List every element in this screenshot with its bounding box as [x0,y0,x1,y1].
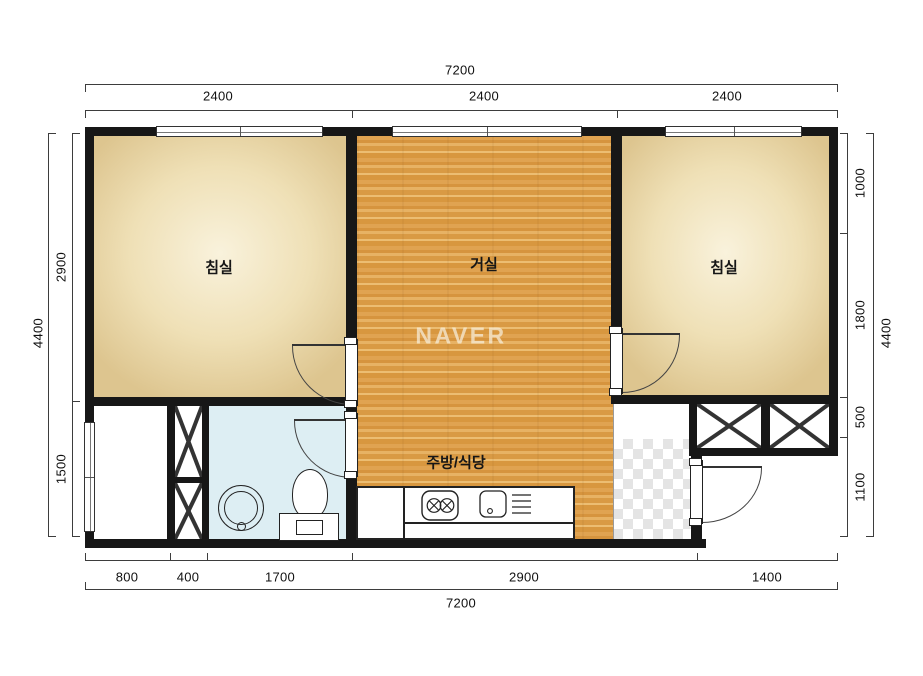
wall-below-bedroom-left [85,397,357,406]
dim-top-total: 7200 [445,63,475,78]
dim-line [48,133,49,537]
dim-tick [837,582,838,590]
door-leaf [702,466,762,468]
dim-tick [837,553,838,561]
window-icon [156,126,323,137]
dim-tick [72,401,80,402]
dim-tick [85,553,86,561]
closet-x-icon [697,404,761,448]
dim-tick [840,437,848,438]
dim-tick [207,553,208,561]
bedroom-right-door [610,328,623,394]
naver-watermark: NAVER [415,323,506,350]
stove-icon [421,490,459,521]
entry-boundary-line [613,404,614,539]
front-door [690,460,703,524]
room-label-bedroom-left: 침실 [205,257,233,278]
window-icon [665,126,802,137]
window-icon [84,422,95,532]
dim-tick [352,553,353,561]
dim-tick [837,84,838,92]
washbasin-inner-ring [224,491,258,525]
dim-top-seg: 2400 [469,89,499,104]
dim-right-seg: 500 [853,406,868,429]
dim-tick [85,582,86,590]
dim-left-seg: 2900 [54,252,69,282]
dim-tick [840,536,848,537]
door-leaf [292,344,352,346]
bathroom-door [345,413,358,477]
dim-tick [352,110,353,118]
dim-right-total: 4400 [879,318,894,348]
door-leaf [294,419,352,421]
dim-line [85,110,838,111]
bedroom-left-door [345,339,358,406]
closet-left-lower [175,483,202,539]
washbasin-drain [237,522,246,531]
closet-x-icon [770,404,829,448]
dim-tick [617,110,618,118]
dim-left-total: 4400 [31,318,46,348]
dim-bottom-seg: 800 [116,570,139,585]
dim-line [85,84,838,85]
room-label-kitchen: 주방/식당 [426,452,485,473]
door-leaf [622,333,680,335]
dim-line [847,133,848,537]
dim-tick [85,84,86,92]
dim-bottom-total: 7200 [446,596,476,611]
dish-rack-icon [512,495,531,513]
dim-bottom-seg: 1400 [752,570,782,585]
dim-tick [170,553,171,561]
dim-bottom-seg: 2900 [509,570,539,585]
toilet-icon [292,469,328,519]
dim-tick [840,233,848,234]
counter-divider [403,488,405,538]
dim-bottom-seg: 1700 [265,570,295,585]
dim-left-seg: 1500 [54,454,69,484]
entry-hall-floor [613,404,691,439]
floor-plan: 침실 거실 침실 주방/식당 NAVER 7200 2400 2400 2400… [0,0,923,676]
dim-line [85,589,838,590]
toilet-tank-lid [296,520,323,535]
dim-top-seg: 2400 [203,89,233,104]
dim-bottom-seg: 400 [177,570,200,585]
dim-tick [866,536,874,537]
window-icon [392,126,582,137]
dim-tick [48,536,56,537]
dim-line [72,133,73,537]
dim-tick [72,536,80,537]
kitchen-counter [356,486,575,540]
dim-tick [48,133,56,134]
dim-tick [837,110,838,118]
closet-x-icon [175,406,202,477]
dim-tick [840,397,848,398]
closet-left-upper [175,406,202,477]
wall-bedroom-left-living-upper [346,130,357,343]
dim-tick [866,133,874,134]
door-swing-icon [702,468,762,523]
dim-tick [85,110,86,118]
sink-icon [479,490,533,519]
closet-right-left [697,404,761,448]
entry-tile-floor [613,439,691,539]
closet-right-right [770,404,829,448]
balcony-floor [94,406,167,539]
room-label-bedroom-right: 침실 [710,257,738,278]
dim-line [85,560,838,561]
wall-bedroom-right-living [611,130,622,332]
counter-edge-line [403,522,573,524]
dim-right-seg: 1800 [853,300,868,330]
dim-tick [72,133,80,134]
dim-top-seg: 2400 [712,89,742,104]
dim-line [873,133,874,537]
dim-right-seg: 1000 [853,168,868,198]
closet-x-icon [175,483,202,539]
dim-tick [697,553,698,561]
dim-tick [840,133,848,134]
dim-right-seg: 1100 [853,472,868,501]
room-label-living: 거실 [470,254,498,275]
